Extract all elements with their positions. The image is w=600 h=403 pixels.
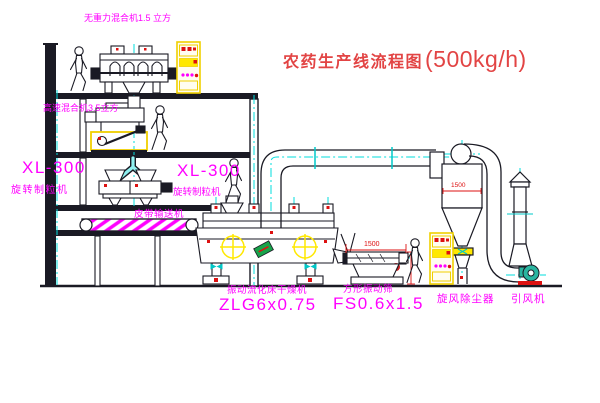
label-high-speed-mixer: 高速混合机3.5立方 (43, 104, 119, 113)
control-cabinet-icon (430, 233, 453, 284)
label-cyclone: 旋风除尘器 (437, 294, 495, 305)
granulator-units (99, 170, 172, 205)
label-fan: 引风机 (511, 294, 546, 305)
label-belt-conveyor: 皮带输送机 (134, 210, 184, 220)
label-granulator-right-name: 旋转制粒机 (173, 188, 221, 198)
cad-flow-diagram: 农药生产线流程图 (500kg/h) 无重力混合机1.5 立方 高速混合机3.5… (0, 0, 600, 403)
label-granulator-right-model: XL-300 (177, 162, 241, 179)
belt-conveyor (80, 219, 198, 231)
label-sieve-model: FS0.6x1.5 (333, 295, 424, 312)
exhaust-stack (507, 172, 533, 266)
label-granulator-left-model: XL-300 (22, 159, 86, 176)
dimension-cyclone-body: 1500 (451, 183, 465, 190)
dimension-sieve-length: 1500 (364, 241, 380, 248)
label-granulator-left-name: 旋转制粒机 (11, 186, 69, 196)
label-gravity-free-mixer: 无重力混合机1.5 立方 (84, 14, 171, 23)
title-chinese: 农药生产线流程图 (283, 48, 423, 72)
person-icon (407, 239, 423, 283)
induced-draft-fan (518, 265, 542, 285)
person-icon (152, 106, 168, 150)
title-capacity: (500kg/h) (425, 46, 527, 73)
person-icon (71, 47, 87, 91)
label-dryer-model: ZLG6x0.75 (219, 296, 317, 313)
valve-icon (211, 264, 317, 270)
page-title: 农药生产线流程图 (500kg/h) (283, 46, 527, 73)
fluid-bed-dryer (196, 196, 352, 284)
control-cabinet-icon (177, 42, 200, 93)
